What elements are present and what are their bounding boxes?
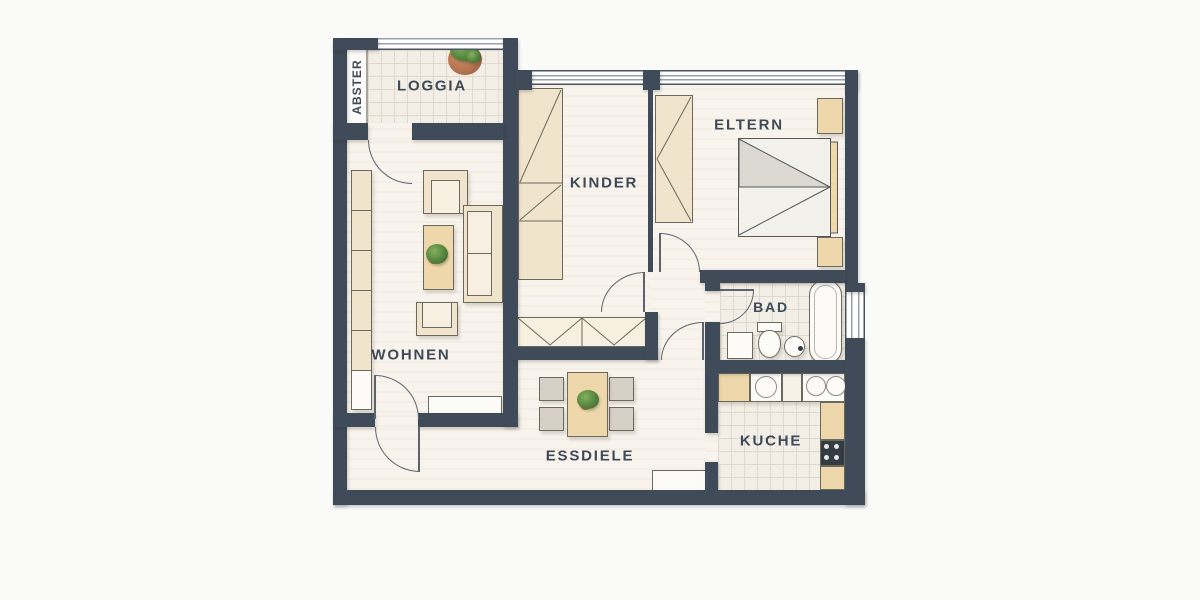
- doorway-floor: [705, 432, 718, 462]
- wall: [705, 360, 845, 373]
- armchair-seat: [431, 180, 460, 214]
- nightstand: [817, 98, 843, 134]
- wall: [516, 70, 532, 90]
- stove-burner: [834, 444, 839, 449]
- plant-icon: [426, 244, 448, 264]
- kitchen-cabinet: [820, 466, 845, 490]
- stove-burner: [824, 455, 829, 460]
- hob-burner: [806, 376, 826, 396]
- wall: [503, 138, 518, 427]
- wall: [845, 70, 858, 285]
- shelf-unit-segment: [352, 371, 371, 409]
- wall: [333, 38, 378, 50]
- nightstand: [817, 237, 843, 267]
- kitchen-sink-basin: [755, 376, 777, 398]
- double-bed: [738, 138, 838, 237]
- faucet-dot: [798, 346, 803, 351]
- chair: [609, 407, 634, 431]
- room-label-loggia: LOGGIA: [397, 78, 467, 95]
- wall: [705, 462, 718, 492]
- wall: [705, 373, 718, 433]
- doorway-floor: [368, 123, 412, 140]
- bathtub-inner: [814, 285, 837, 359]
- wall: [845, 338, 865, 505]
- door-leaf: [702, 322, 704, 360]
- kinder-bed: [517, 317, 647, 347]
- stove-burner: [834, 455, 839, 460]
- kitchen-counter: [782, 373, 802, 402]
- kinder-wardrobe: [518, 88, 563, 280]
- wall: [418, 413, 518, 427]
- wall: [333, 38, 347, 505]
- stove-burner: [824, 444, 829, 449]
- floor-plan: ABSTER LOGGIA KINDER ELTERN WOHNEN BAD K…: [0, 0, 1200, 600]
- window: [518, 70, 845, 85]
- wall: [333, 123, 368, 140]
- door-leaf: [643, 272, 645, 312]
- door-leaf: [659, 233, 661, 272]
- door-leaf: [374, 375, 376, 419]
- wall: [700, 270, 845, 283]
- wall: [845, 283, 865, 292]
- chair: [539, 377, 564, 401]
- eltern-wardrobe: [655, 95, 693, 223]
- room-label-abstellraum: ABSTER: [350, 59, 364, 114]
- window: [845, 292, 865, 338]
- hob-burner: [826, 376, 846, 396]
- wall: [705, 283, 720, 291]
- room-label-eltern: ELTERN: [714, 117, 784, 134]
- door-leaf: [720, 289, 754, 291]
- plant-icon: [577, 390, 599, 409]
- toilet: [758, 330, 781, 358]
- wall: [412, 123, 503, 140]
- wall: [645, 312, 658, 360]
- room-label-kinder: KINDER: [570, 175, 638, 192]
- plant-icon: [466, 50, 481, 63]
- wall: [512, 347, 658, 360]
- room-label-bad: BAD: [753, 299, 789, 315]
- kitchen-cabinet: [820, 402, 845, 440]
- sideboard: [428, 396, 502, 414]
- wall: [333, 490, 865, 505]
- chair: [539, 407, 564, 431]
- wall: [333, 413, 375, 427]
- kitchen-cabinet: [718, 373, 750, 402]
- room-label-kueche: KUCHE: [740, 433, 802, 450]
- sofa-cushion-line: [467, 253, 492, 254]
- sideboard: [652, 470, 708, 491]
- chair: [609, 377, 634, 401]
- room-label-essdiele: ESSDIELE: [546, 448, 635, 465]
- bath-cabinet: [727, 332, 753, 359]
- essdiele-floor: [347, 427, 518, 490]
- door-leaf: [418, 427, 420, 472]
- wall: [705, 322, 720, 360]
- doorway-floor: [705, 290, 720, 323]
- loggia-railing: [378, 38, 505, 50]
- wall: [648, 85, 653, 272]
- armchair-seat: [422, 302, 452, 328]
- room-label-wohnen: WOHNEN: [371, 347, 450, 364]
